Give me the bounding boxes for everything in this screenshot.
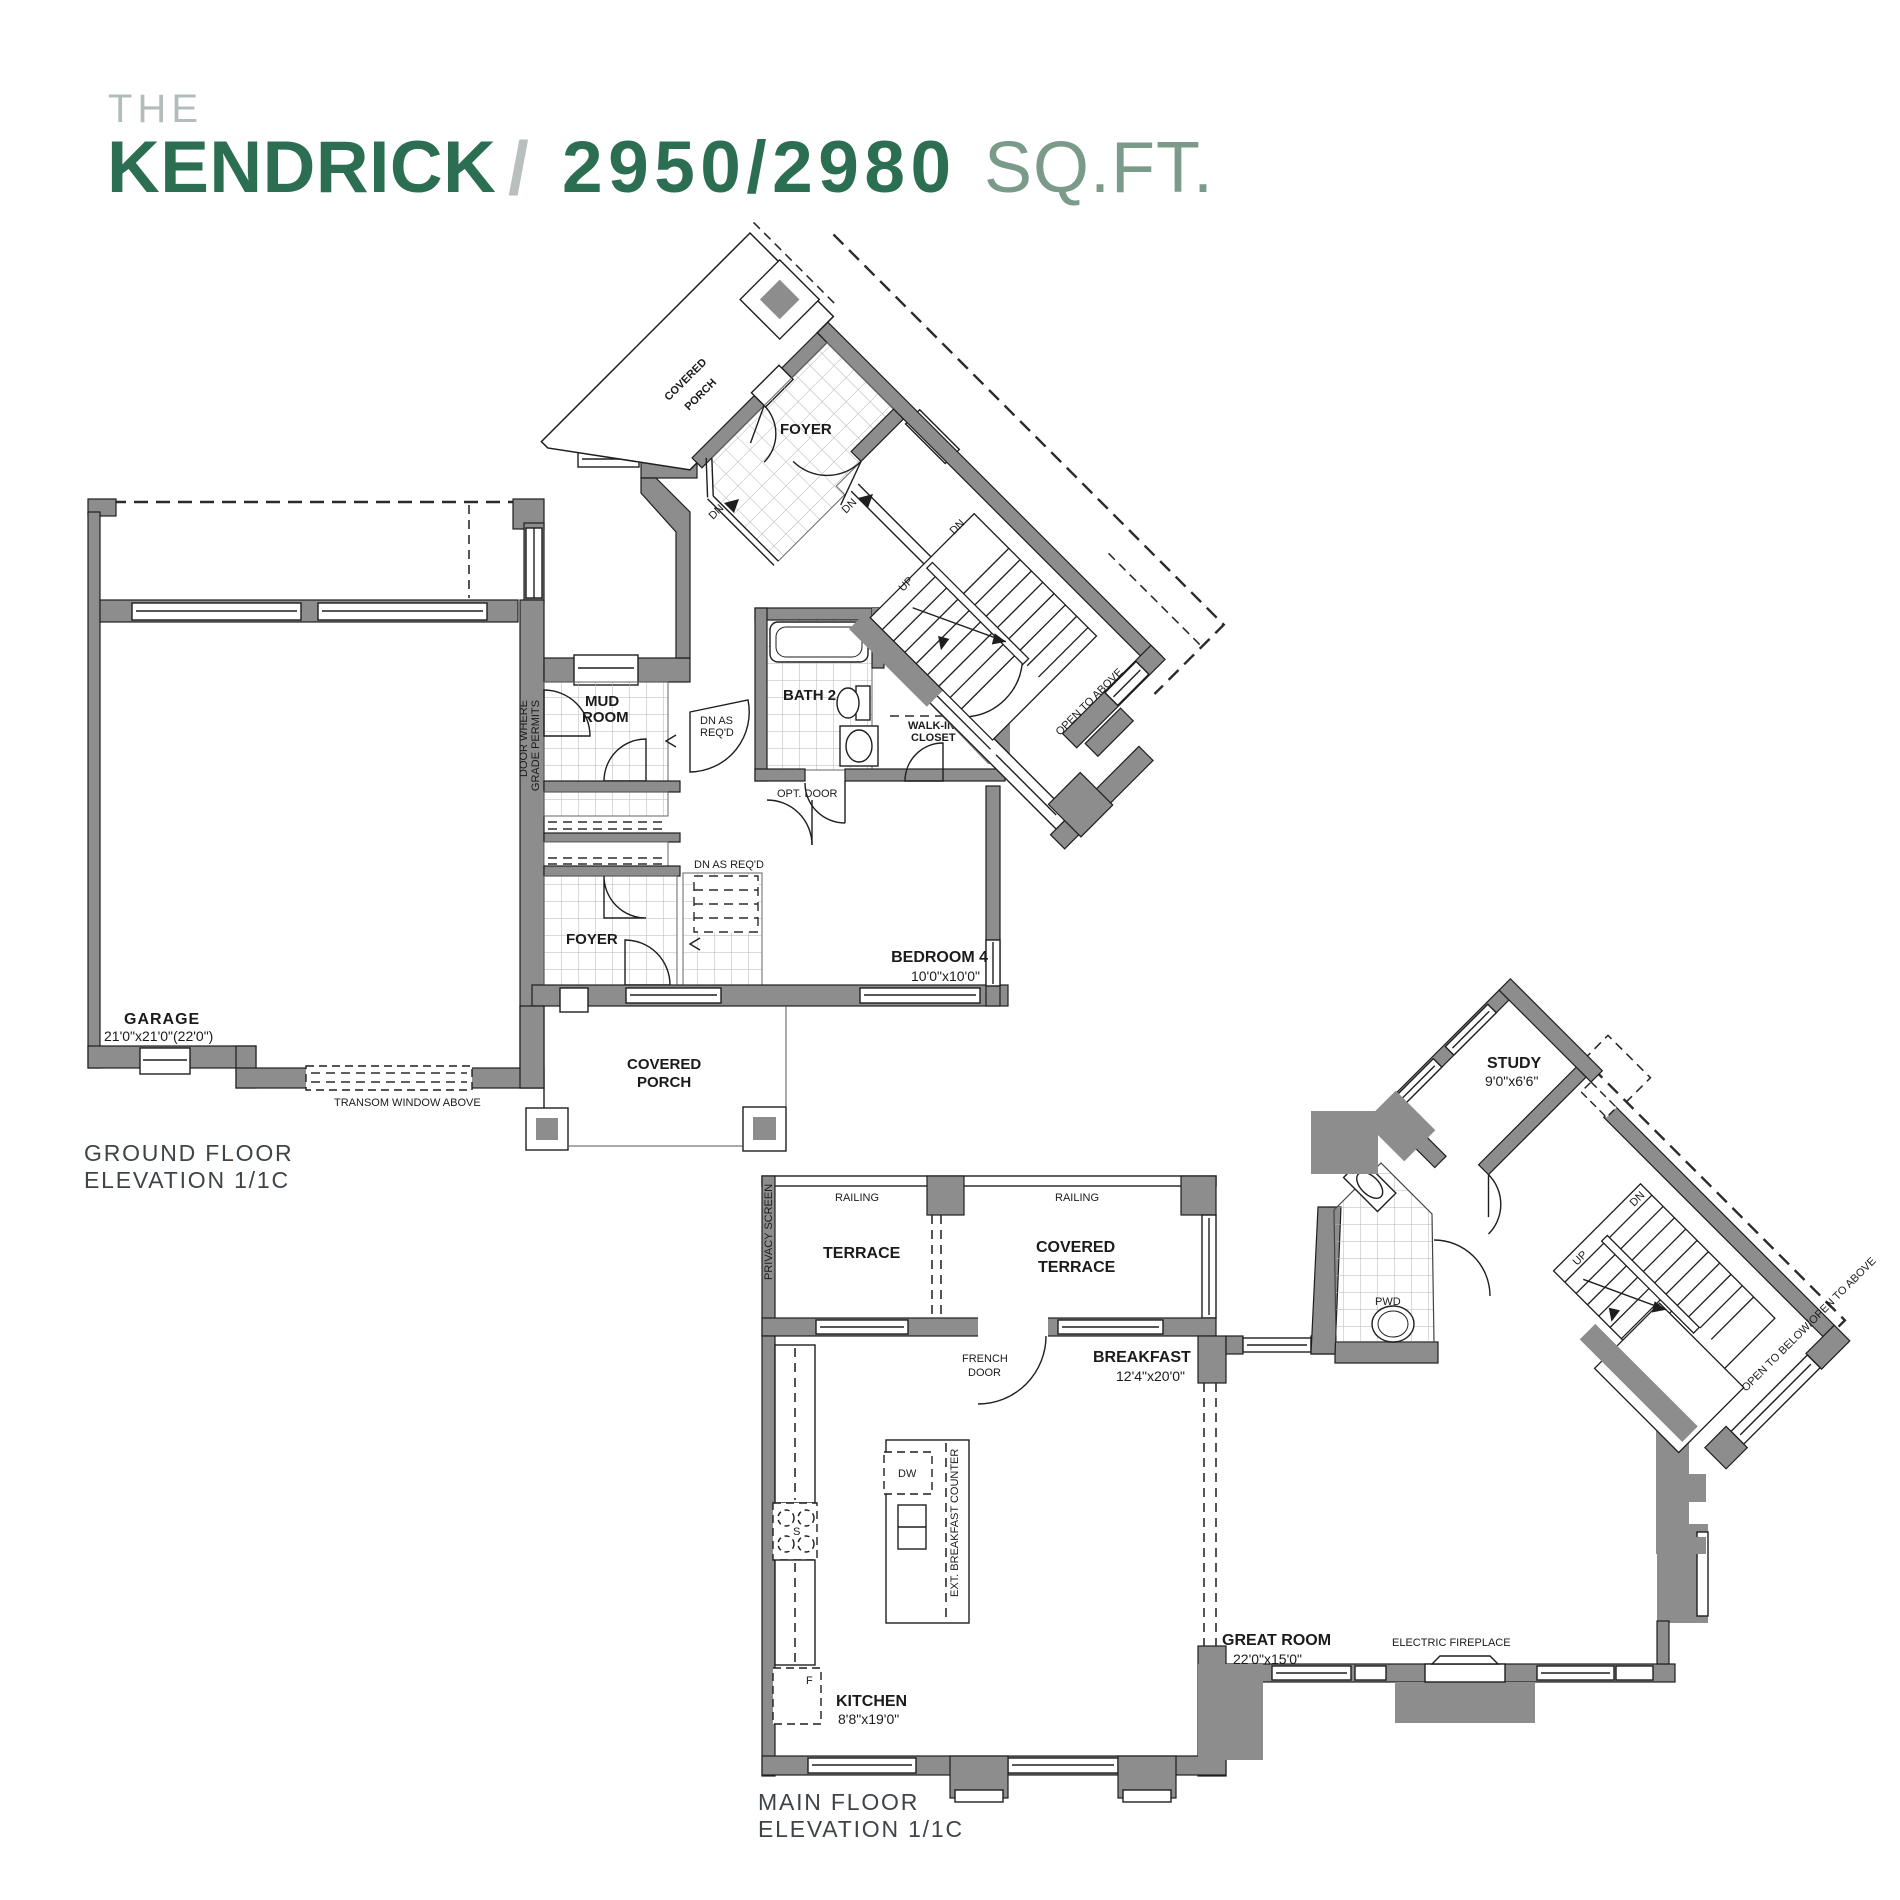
svg-text:GRADE PERMITS: GRADE PERMITS (530, 700, 542, 791)
svg-text:FOYER: FOYER (780, 421, 832, 438)
svg-text:RAILING: RAILING (1055, 1192, 1099, 1204)
svg-text:EXT. BREAKFAST COUNTER: EXT. BREAKFAST COUNTER (949, 1449, 961, 1597)
svg-text:GROUND FLOOR: GROUND FLOOR (84, 1140, 293, 1166)
svg-text:PORCH: PORCH (637, 1074, 691, 1091)
svg-text:GREAT ROOM: GREAT ROOM (1222, 1632, 1331, 1649)
svg-text:THE: THE (108, 87, 203, 131)
svg-text:MUD: MUD (585, 693, 619, 710)
svg-text:8'8"x19'0": 8'8"x19'0" (838, 1711, 899, 1727)
svg-text:SQ.FT.: SQ.FT. (984, 128, 1214, 208)
svg-text:FOYER: FOYER (566, 931, 618, 948)
svg-text:COVERED: COVERED (627, 1056, 701, 1073)
svg-text:DOOR WHERE: DOOR WHERE (518, 700, 530, 777)
svg-text:2950/2980: 2950/2980 (562, 127, 957, 208)
svg-text:RAILING: RAILING (835, 1192, 879, 1204)
svg-text:DOOR: DOOR (968, 1367, 1001, 1379)
svg-text:REQ'D: REQ'D (700, 727, 734, 739)
svg-text:FRENCH: FRENCH (962, 1353, 1008, 1365)
svg-text:F: F (806, 1675, 813, 1687)
svg-text:10'0"x10'0": 10'0"x10'0" (911, 968, 980, 984)
svg-text:BATH 2: BATH 2 (783, 687, 836, 704)
svg-text:TERRACE: TERRACE (823, 1245, 901, 1262)
svg-text:BEDROOM 4: BEDROOM 4 (891, 949, 988, 966)
svg-text:ELEVATION 1/1C: ELEVATION 1/1C (758, 1816, 964, 1842)
svg-text:DN AS: DN AS (700, 715, 733, 727)
svg-text:TERRACE: TERRACE (1038, 1259, 1116, 1276)
svg-text:KENDRICK: KENDRICK (107, 127, 496, 208)
svg-text:S: S (793, 1526, 800, 1538)
svg-text:BREAKFAST: BREAKFAST (1093, 1349, 1191, 1366)
svg-text:STUDY: STUDY (1487, 1055, 1542, 1072)
svg-text:MAIN FLOOR: MAIN FLOOR (758, 1789, 919, 1815)
svg-text:TRANSOM WINDOW ABOVE: TRANSOM WINDOW ABOVE (334, 1097, 481, 1109)
svg-text:ELEVATION 1/1C: ELEVATION 1/1C (84, 1167, 290, 1193)
svg-text:OPT. DOOR: OPT. DOOR (777, 788, 838, 800)
svg-text:DW: DW (898, 1468, 917, 1480)
svg-text:9'0"x6'6": 9'0"x6'6" (1485, 1073, 1538, 1089)
svg-text:PRIVACY SCREEN: PRIVACY SCREEN (763, 1184, 775, 1280)
svg-text:COVERED: COVERED (1036, 1239, 1115, 1256)
svg-text:KITCHEN: KITCHEN (836, 1693, 907, 1710)
svg-text:ELECTRIC FIREPLACE: ELECTRIC FIREPLACE (1392, 1637, 1511, 1649)
svg-text:12'4"x20'0": 12'4"x20'0" (1116, 1368, 1185, 1384)
svg-text:22'0"x15'0": 22'0"x15'0" (1233, 1651, 1302, 1667)
svg-text:CLOSET: CLOSET (911, 732, 956, 744)
svg-text:21'0"x21'0"(22'0"): 21'0"x21'0"(22'0") (104, 1028, 213, 1044)
svg-text:DN AS REQ'D: DN AS REQ'D (694, 859, 764, 871)
svg-text:GARAGE: GARAGE (124, 1011, 200, 1028)
svg-text:/: / (508, 126, 529, 210)
